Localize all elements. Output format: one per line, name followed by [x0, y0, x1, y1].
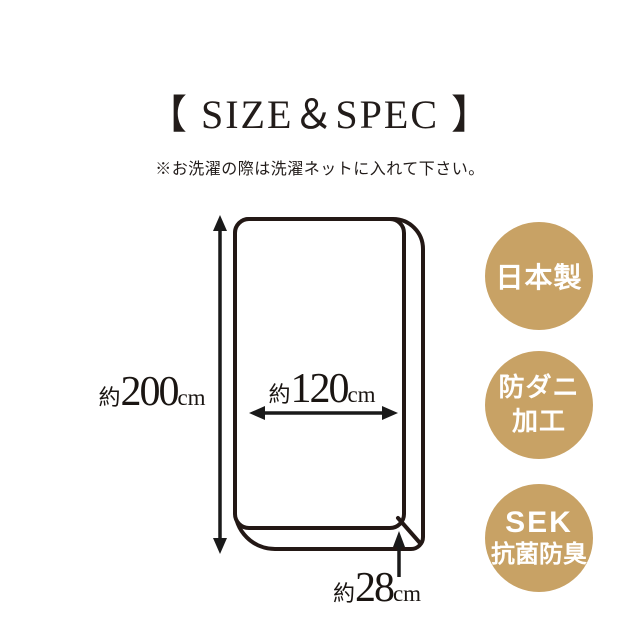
- width-value: 120: [290, 366, 347, 412]
- badge-made-in-japan-label: 日本製: [495, 256, 582, 296]
- badge-anti-mite-line2: 加工: [512, 405, 566, 439]
- badge-made-in-japan: 日本製: [485, 222, 593, 330]
- length-unit: cm: [177, 385, 205, 410]
- badge-anti-mite-line1: 防ダニ: [498, 371, 579, 405]
- depth-value: 28: [355, 565, 393, 611]
- width-approx-prefix: 約: [268, 382, 290, 407]
- depth-approx-prefix: 約: [333, 581, 355, 606]
- size-spec-panel: 【 SIZE＆SPEC 】 ※お洗濯の際は洗濯ネットに入れて下さい。 約200c…: [0, 0, 640, 640]
- depth-unit: cm: [393, 581, 421, 606]
- badge-sek-line1: SEK: [505, 506, 573, 541]
- length-dimension-label: 約200cm: [98, 371, 205, 413]
- width-unit: cm: [347, 382, 375, 407]
- depth-dimension-label: 約28cm: [333, 567, 421, 609]
- badge-sek-line2: 抗菌防臭: [491, 541, 587, 570]
- badge-anti-mite: 防ダニ 加工: [485, 351, 593, 459]
- badge-sek-antibacterial: SEK 抗菌防臭: [485, 484, 593, 592]
- length-approx-prefix: 約: [98, 385, 120, 410]
- width-dimension-label: 約120cm: [268, 368, 375, 410]
- length-arrow: [213, 215, 227, 554]
- length-value: 200: [120, 369, 177, 415]
